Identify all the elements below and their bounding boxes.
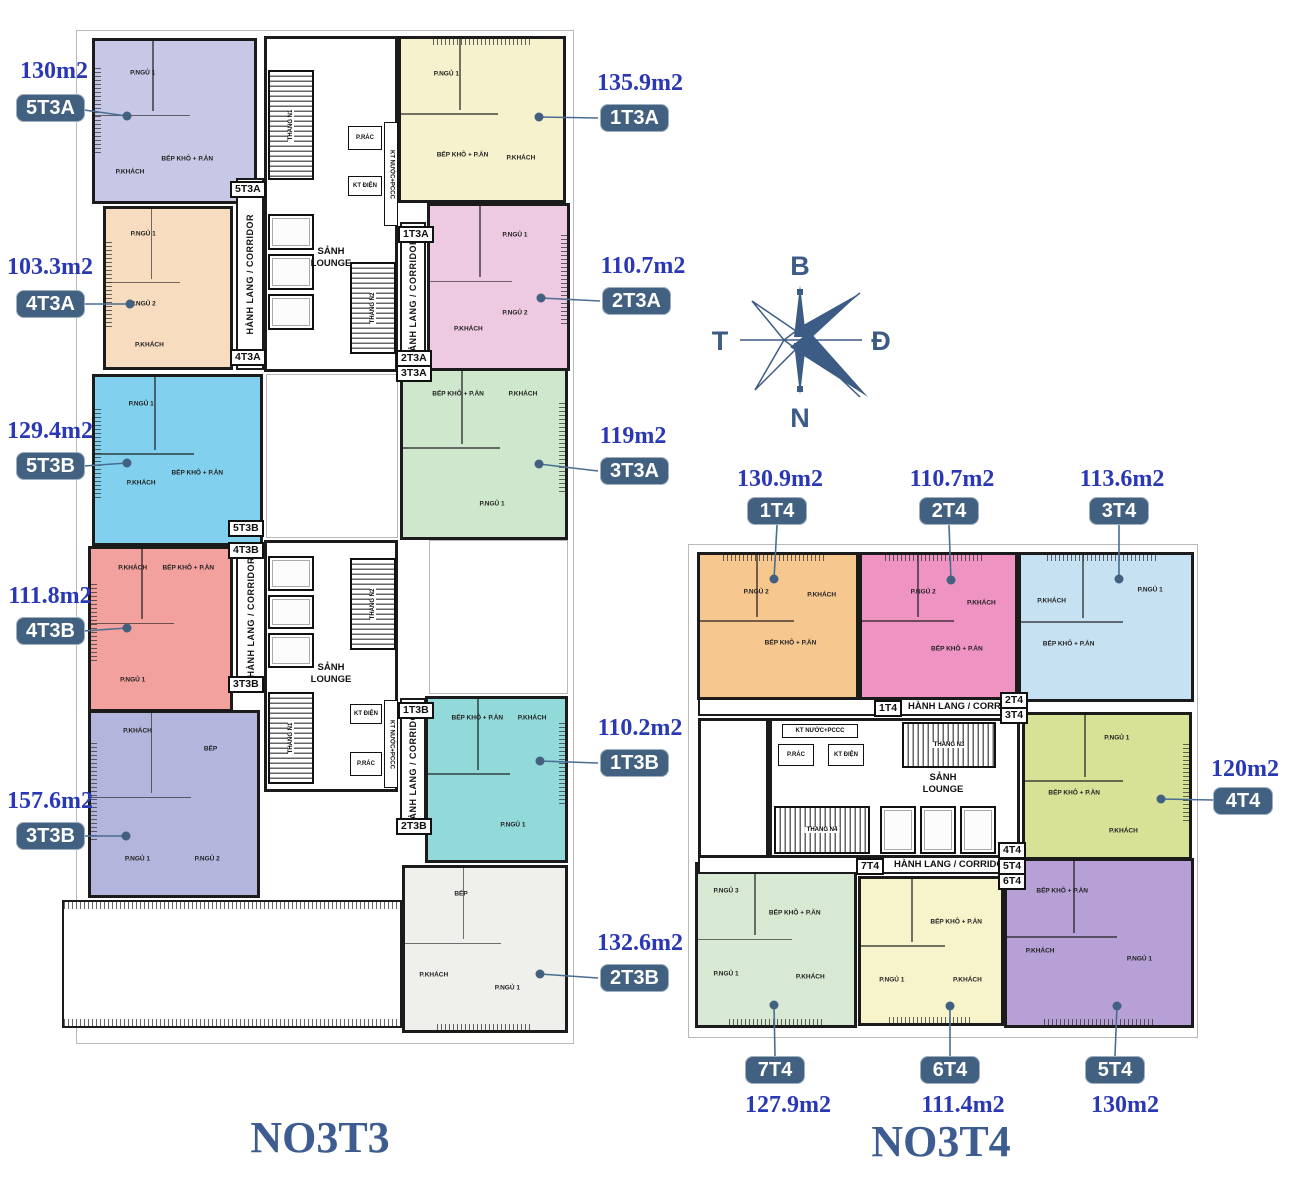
unit-badge-1t3a: 1T3A — [600, 104, 669, 132]
plan-tag-1t3a: 1T3A — [398, 226, 434, 243]
room-label: P.NGỦ 1 — [1127, 956, 1152, 963]
room-label: P.KHÁCH — [1037, 598, 1066, 605]
room-label: P.NGỦ 1 — [500, 821, 525, 828]
trash-room: P.RÁC — [350, 752, 382, 776]
room-label: P.NGỦ 1 — [1138, 586, 1163, 593]
unit-badge-4t4: 4T4 — [1213, 787, 1273, 815]
stairs-n4: THANG N4 — [774, 806, 870, 854]
balcony-hatch — [1183, 743, 1189, 821]
room-label: BẾP KHÔ + P.ĂN — [931, 645, 983, 652]
unit-6t4: BẾP KHÔ + P.ĂN P.KHÁCH P.NGỦ 1 — [858, 876, 1004, 1026]
no3t3-court — [429, 540, 568, 694]
room-label: P.KHÁCH — [123, 728, 152, 735]
terrace-hatch — [64, 902, 400, 909]
unit-2t3a: P.NGỦ 1 P.NGỦ 2 P.KHÁCH — [427, 203, 570, 371]
unit-4t3a: P.NGỦ 1 P.NGỦ 2 P.KHÁCH — [103, 206, 233, 370]
unit-5t4: BẾP KHÔ + P.ĂN P.KHÁCH P.NGỦ 1 — [1004, 858, 1194, 1028]
area-label-5t3a: 130m2 — [6, 58, 102, 85]
stairs-n2: THANG N2 — [350, 558, 396, 650]
room-label: P.NGỦ 3 — [713, 887, 738, 894]
room-label: P.KHÁCH — [953, 976, 982, 983]
balcony-hatch — [561, 235, 567, 324]
room-label: P.NGỦ 2 — [744, 588, 769, 595]
room-label: P.NGỦ 1 — [120, 677, 145, 684]
area-label-3t3b: 157.6m2 — [0, 788, 100, 815]
room-label: P.KHÁCH — [967, 600, 996, 607]
room-label: P.KHÁCH — [1026, 948, 1055, 955]
area-label-2t4: 110.7m2 — [910, 466, 995, 493]
room-label: BẾP KHÔ + P.ĂN — [930, 919, 982, 926]
area-label-5t3b: 129.4m2 — [0, 418, 100, 445]
plan-tag-4t3a: 4T3A — [230, 349, 266, 366]
electrical-room: KT ĐIỆN — [828, 744, 864, 766]
balcony-hatch — [437, 1024, 533, 1030]
corridor-top-left: HÀNH LANG / CORRIDOR — [236, 178, 264, 370]
area-label-7t4: 127.9m2 — [745, 1092, 831, 1119]
corridor-label: HÀNH LANG / CORRIDOR — [408, 706, 418, 827]
building-title-no3t4: NO3T4 — [871, 1116, 1010, 1167]
unit-4t3b: P.KHÁCH BẾP KHÔ + P.ĂN P.NGỦ 1 — [88, 546, 233, 712]
unit-badge-1t4: 1T4 — [747, 497, 807, 525]
plan-tag-3t3a: 3T3A — [396, 365, 432, 382]
balcony-hatch — [1047, 555, 1158, 561]
room-label: BẾP KHÔ + P.ĂN — [765, 640, 817, 647]
room-label: BẾP KHÔ + P.ĂN — [1043, 641, 1095, 648]
compass-west-label: T — [712, 326, 729, 356]
plan-tag-4t3b: 4T3B — [228, 542, 264, 559]
plan-tag-3t3b: 3T3B — [228, 676, 264, 693]
room-label: P.KHÁCH — [506, 155, 535, 162]
unit-badge-2t4: 2T4 — [919, 497, 979, 525]
plan-tag-5t3a: 5T3A — [230, 181, 266, 198]
area-label-4t3a: 103.3m2 — [0, 254, 100, 281]
balcony-hatch — [559, 723, 565, 804]
room-label: P.KHÁCH — [518, 715, 547, 722]
building-title-no3t3: NO3T3 — [250, 1112, 389, 1163]
unit-badge-2t3b: 2T3B — [600, 964, 669, 992]
area-label-1t3b: 110.2m2 — [590, 715, 690, 742]
lounge-label: SẢNH LOUNGE — [908, 772, 978, 796]
plan-tag-2t3b: 2T3B — [396, 818, 432, 835]
room-label: P.NGỦ 2 — [911, 588, 936, 595]
area-label-3t4: 113.6m2 — [1080, 466, 1165, 493]
room-label: P.NGỦ 2 — [131, 300, 156, 307]
stairs-label: THANG N2 — [370, 587, 376, 622]
room-label: P.NGỦ 1 — [713, 970, 738, 977]
unit-badge-3t4: 3T4 — [1089, 497, 1149, 525]
unit-4t4: P.NGỦ 1 BẾP KHÔ + P.ĂN P.KHÁCH — [1022, 712, 1192, 860]
balcony-hatch — [106, 241, 112, 328]
corridor-mid-left: HÀNH LANG / CORRIDOR — [236, 542, 266, 692]
stairs-n2: THANG N2 — [350, 262, 396, 354]
room-label: BẾP KHÔ + P.ĂN — [171, 470, 223, 477]
water-room: KT NƯỚC+PCCC — [384, 122, 398, 226]
room-label: BẾP KHÔ + P.ĂN — [437, 151, 489, 158]
unit-badge-5t3a: 5T3A — [16, 94, 85, 122]
room-label: P.NGỦ 1 — [480, 500, 505, 507]
room-label: P.KHÁCH — [508, 391, 537, 398]
unit-2t3b: BẾP P.KHÁCH P.NGỦ 1 — [402, 865, 568, 1033]
terrace-hatch — [64, 1019, 400, 1026]
unit-badge-6t4: 6T4 — [920, 1056, 980, 1084]
balcony-hatch — [729, 1019, 823, 1025]
elevators — [268, 556, 314, 668]
room-label: BẾP KHÔ + P.ĂN — [452, 715, 504, 722]
area-label-1t3a: 135.9m2 — [590, 70, 690, 97]
water-room: KT NƯỚC+PCCC — [384, 700, 398, 788]
lounge-label: SẢNH LOUNGE — [298, 662, 364, 686]
room-label: P.NGỦ 1 — [125, 855, 150, 862]
room-label: P.NGỦ 2 — [195, 855, 220, 862]
area-label-4t4: 120m2 — [1211, 756, 1279, 783]
plan-tag-3t4: 3T4 — [1000, 707, 1028, 724]
room-label: P.KHÁCH — [127, 480, 156, 487]
compass-rose: B Đ N T — [700, 245, 900, 435]
stairs-label: THANG N3 — [932, 742, 967, 748]
balcony-hatch — [889, 1017, 973, 1023]
unit-1t3a: P.NGỦ 1 BẾP KHÔ + P.ĂN P.KHÁCH — [398, 36, 566, 203]
area-label-5t4: 130m2 — [1091, 1092, 1159, 1119]
room-label: P.KHÁCH — [118, 565, 147, 572]
room-label: P.KHÁCH — [796, 974, 825, 981]
corridor-label: HÀNH LANG / CORRIDOR — [246, 557, 256, 678]
area-label-2t3b: 132.6m2 — [590, 930, 690, 957]
core-wall — [766, 718, 772, 858]
floorplan-canvas: P.NGỦ 1 BẾP KHÔ + P.ĂN P.KHÁCH P.NGỦ 1 B… — [0, 0, 1299, 1181]
area-label-6t4: 111.4m2 — [921, 1092, 1004, 1119]
terrace — [62, 900, 402, 1028]
unit-badge-3t3a: 3T3A — [600, 457, 669, 485]
room-label: BẾP KHÔ + P.ĂN — [162, 565, 214, 572]
plan-tag-5t3b: 5T3B — [228, 520, 264, 537]
area-label-2t3a: 110.7m2 — [593, 253, 693, 280]
unit-2t4: P.NGỦ 2 P.KHÁCH BẾP KHÔ + P.ĂN — [859, 552, 1018, 700]
balcony-hatch — [559, 401, 565, 492]
stairs-n1: THANG N1 — [268, 692, 314, 784]
room-label: P.NGỦ 1 — [1104, 734, 1129, 741]
room-label: BẾP KHÔ + P.ĂN — [161, 156, 213, 163]
plan-tag-1t3b: 1T3B — [398, 702, 434, 719]
unit-badge-4t3b: 4T3B — [16, 617, 85, 645]
stairs-label: THANG N4 — [805, 827, 840, 833]
room-label: P.KHÁCH — [454, 326, 483, 333]
unit-badge-7t4: 7T4 — [745, 1056, 805, 1084]
plan-tag-6t4: 6T4 — [998, 873, 1026, 890]
water-room: KT NƯỚC+PCCC — [782, 724, 858, 738]
room-label: BẾP — [454, 890, 467, 897]
stairs-label: THANG N1 — [288, 108, 294, 143]
room-label: P.KHÁCH — [135, 341, 164, 348]
unit-1t4: P.NGỦ 2 P.KHÁCH BẾP KHÔ + P.ĂN — [697, 552, 859, 700]
area-label-3t3a: 119m2 — [593, 423, 673, 450]
unit-3t3b: P.KHÁCH BẾP P.NGỦ 1 P.NGỦ 2 — [88, 710, 260, 898]
room-label: BẾP KHÔ + P.ĂN — [1048, 790, 1100, 797]
balcony-hatch — [1044, 1019, 1154, 1025]
room-label: BẾP KHÔ + P.ĂN — [432, 391, 484, 398]
unit-badge-5t4: 5T4 — [1085, 1056, 1145, 1084]
corridor-label: HÀNH LANG / CORRIDOR — [408, 238, 418, 359]
stairs-label: THANG N1 — [288, 721, 294, 756]
room-label: BẾP KHÔ + P.ĂN — [1036, 887, 1088, 894]
no3t3-lightwell — [266, 374, 398, 538]
balcony-hatch — [433, 39, 530, 45]
plan-tag-7t4: 7T4 — [856, 858, 884, 875]
unit-3t3a: BẾP KHÔ + P.ĂN P.KHÁCH P.NGỦ 1 — [400, 368, 568, 540]
elevators — [880, 806, 996, 854]
trash-room: P.RÁC — [778, 744, 814, 766]
compass-north-label: B — [790, 251, 810, 281]
unit-badge-5t3b: 5T3B — [16, 452, 85, 480]
unit-badge-3t3b: 3T3B — [16, 822, 85, 850]
elevators — [268, 214, 314, 330]
unit-1t3b: BẾP KHÔ + P.ĂN P.KHÁCH P.NGỦ 1 — [425, 696, 568, 863]
room-label: P.KHÁCH — [116, 169, 145, 176]
unit-badge-4t3a: 4T3A — [16, 290, 85, 318]
stairs-n3: THANG N3 — [902, 722, 996, 768]
room-label: P.KHÁCH — [1109, 828, 1138, 835]
unit-5t3a: P.NGỦ 1 BẾP KHÔ + P.ĂN P.KHÁCH — [92, 38, 257, 204]
electrical-room: KT ĐIỆN — [348, 176, 382, 196]
unit-badge-2t3a: 2T3A — [602, 287, 671, 315]
compass-south-label: N — [790, 403, 810, 433]
stairs-n1: THANG N1 — [268, 70, 314, 180]
trash-room: P.RÁC — [348, 126, 382, 150]
unit-3t4: P.KHÁCH P.NGỦ 1 BẾP KHÔ + P.ĂN — [1018, 552, 1194, 702]
room-label: P.NGỦ 1 — [434, 71, 459, 78]
corridor-label: HÀNH LANG / CORRIDOR — [894, 859, 1011, 870]
balcony-hatch — [885, 555, 984, 561]
unit-7t4: P.NGỦ 3 BẾP KHÔ + P.ĂN P.KHÁCH P.NGỦ 1 — [695, 862, 857, 1028]
area-label-1t4: 130.9m2 — [737, 466, 823, 493]
room-label: P.NGỦ 1 — [495, 984, 520, 991]
corridor-label: HÀNH LANG / CORRIDOR — [245, 214, 255, 335]
stairs-label: THANG N2 — [370, 291, 376, 326]
room-label: P.KHÁCH — [419, 971, 448, 978]
room-label: BẾP KHÔ + P.ĂN — [769, 910, 821, 917]
room-label: BẾP — [204, 746, 217, 753]
room-label: P.NGỦ 1 — [502, 232, 527, 239]
plan-tag-1t4: 1T4 — [874, 700, 902, 717]
lounge-label: SẢNH LOUNGE — [298, 246, 364, 270]
room-label: P.NGỦ 1 — [131, 231, 156, 238]
room-label: P.NGỦ 2 — [502, 309, 527, 316]
electrical-room: KT ĐIỆN — [350, 704, 382, 724]
room-label: P.NGỦ 1 — [129, 400, 154, 407]
room-label: P.KHÁCH — [807, 591, 836, 598]
room-label: P.NGỦ 1 — [879, 976, 904, 983]
plan-tag-4t4: 4T4 — [998, 842, 1026, 859]
room-label: P.NGỦ 1 — [130, 70, 155, 77]
area-label-4t3b: 111.8m2 — [0, 583, 100, 610]
compass-east-label: Đ — [871, 326, 891, 356]
unit-badge-1t3b: 1T3B — [600, 749, 669, 777]
balcony-hatch — [723, 555, 824, 561]
